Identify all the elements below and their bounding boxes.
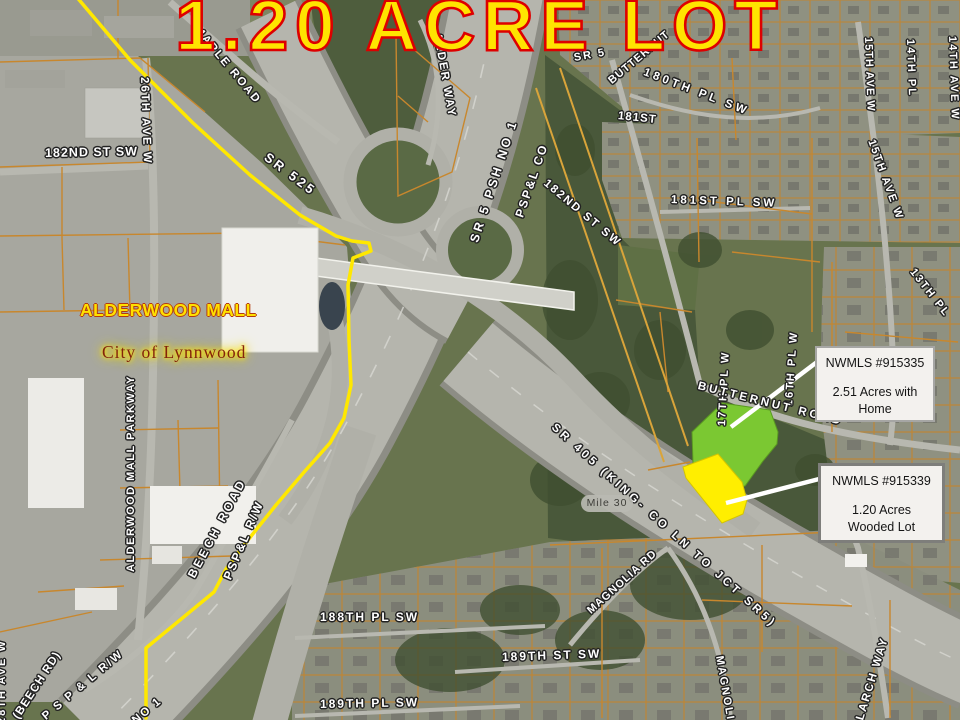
road-label-189th-pl-sw: 189TH PL SW (320, 695, 419, 711)
callout-nwmls-915339: NWMLS #915339 1.20 Acres Wooded Lot (818, 463, 945, 543)
callout-nwmls-915335: NWMLS #915335 2.51 Acres with Home (815, 346, 935, 422)
aerial-map-canvas: MAPLE ROAD ALDER WAY SR 525 SR 5 PSH NO … (0, 0, 960, 720)
road-label-182nd-st-sw-west: 182ND ST SW (45, 144, 138, 160)
callout-description-line: 1.20 Acres (824, 502, 939, 519)
callout-mls-number: NWMLS #915335 (821, 355, 929, 372)
callout-description-line: Wooded Lot (824, 519, 939, 536)
callout-description-line: 2.51 Acres with (820, 384, 930, 401)
road-label-14th-ave-w: 14TH AVE W (946, 36, 960, 121)
city-of-lynnwood-label: City of Lynnwood (102, 342, 246, 363)
road-label-14th-pl: 14TH PL (904, 39, 918, 97)
road-label-28th-ave-w: 28TH AVE W (0, 639, 8, 720)
road-label-alderwood-mall-parkway: ALDERWOOD MALL PARKWAY (125, 375, 137, 572)
road-label-15th-ave-w-north: 15TH AVE W (862, 37, 877, 112)
callout-mls-number: NWMLS #915339 (825, 473, 938, 490)
road-label-188th-pl-sw: 188TH PL SW (320, 610, 419, 624)
mile-30-marker: Mile 30 (581, 495, 633, 512)
pond (319, 282, 345, 330)
listing-title-banner: 1.20 ACRE LOT (175, 0, 784, 67)
callout-description-line: Home (820, 401, 930, 418)
alderwood-mall-label: ALDERWOOD MALL (80, 300, 257, 321)
